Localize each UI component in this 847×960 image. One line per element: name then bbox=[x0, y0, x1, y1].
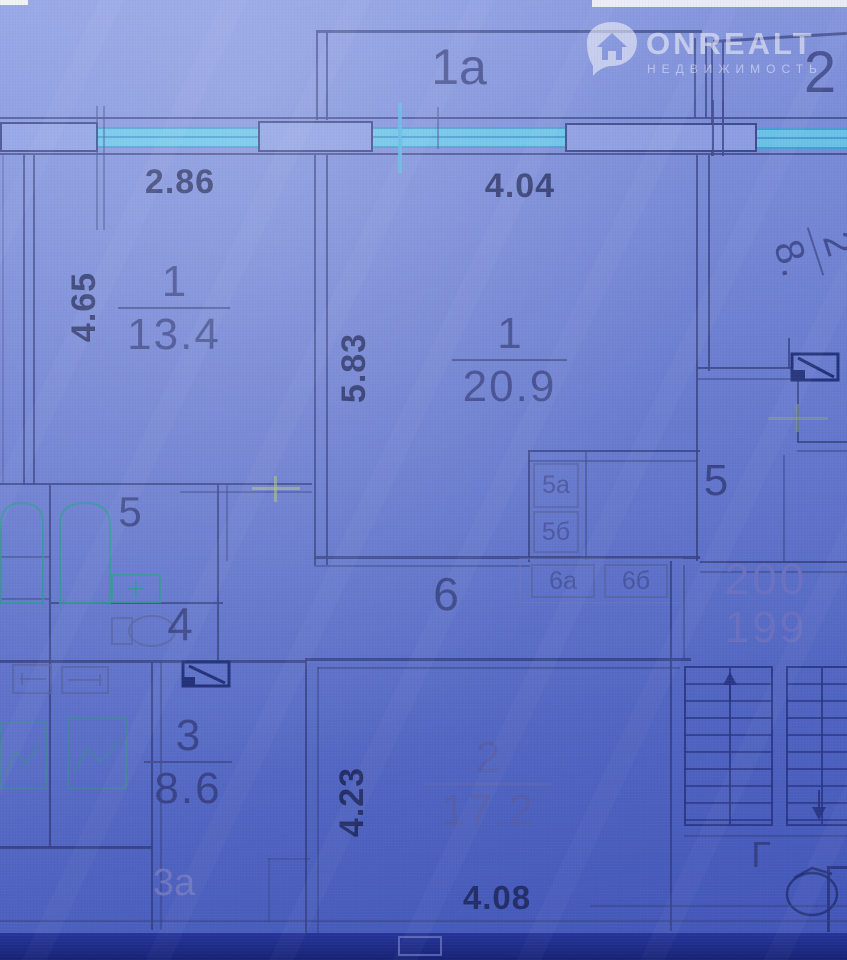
loggia-3a-label: 3а bbox=[136, 860, 212, 906]
vent-shaft-icon bbox=[790, 352, 842, 384]
onrealt-pin-house-icon bbox=[585, 20, 639, 78]
wall-segment bbox=[697, 367, 791, 369]
window-segment bbox=[757, 128, 847, 149]
dimension-bottom: 4.08 bbox=[430, 876, 564, 918]
wall-segment bbox=[0, 483, 312, 485]
dimension-left-vertical: 4.65 bbox=[62, 252, 106, 362]
stair-arrow-down-icon bbox=[812, 807, 826, 820]
balcony-1a-label: 1а bbox=[424, 38, 494, 96]
photo-edge bbox=[592, 0, 847, 7]
room-area: 8. bbox=[767, 235, 817, 283]
closet-6a-label: 6а bbox=[549, 567, 577, 596]
survey-cross bbox=[796, 404, 799, 432]
closet-6a: 6а bbox=[531, 564, 595, 598]
wall-segment bbox=[0, 153, 847, 155]
stair-flight-down bbox=[786, 666, 847, 826]
wall-segment bbox=[316, 30, 702, 33]
wall-segment bbox=[314, 565, 530, 567]
wall-segment bbox=[316, 32, 318, 120]
wall-pier bbox=[258, 121, 373, 152]
wall-segment bbox=[317, 667, 680, 669]
dimension-top-left: 2.86 bbox=[120, 162, 240, 202]
corridor-label: 5 bbox=[698, 455, 734, 507]
wall-segment bbox=[0, 846, 152, 849]
dimension-left-vertical-text: 4.65 bbox=[67, 272, 101, 342]
door-swing-marks bbox=[10, 662, 120, 698]
wall-segment bbox=[712, 100, 714, 156]
wall-segment bbox=[797, 441, 847, 443]
wc-label: 4 bbox=[160, 596, 200, 652]
wall-segment bbox=[326, 32, 328, 120]
stair-flight-up bbox=[684, 666, 773, 826]
wall-segment bbox=[2, 155, 4, 485]
wall-segment bbox=[317, 667, 319, 960]
wall-segment bbox=[528, 450, 700, 452]
closet-6b-label: 6б bbox=[622, 567, 650, 596]
dimension-tick bbox=[96, 106, 98, 230]
dimension-room2-vertical-text: 4.23 bbox=[335, 767, 369, 837]
room-number: 1 bbox=[497, 312, 521, 356]
fraction-bar bbox=[452, 359, 567, 361]
wall-segment bbox=[697, 378, 791, 380]
wall-segment bbox=[590, 905, 847, 907]
kitchen-label: 3 8.6 bbox=[144, 714, 232, 811]
closet-5a-label: 5а bbox=[542, 471, 570, 500]
fraction-bar bbox=[144, 761, 232, 763]
floor-plan-photo: 1а 2 ONREALT НЕДВИЖИМОСТЬ 2.86 4.04 4.65… bbox=[0, 0, 847, 960]
wall-segment bbox=[0, 117, 847, 119]
dimension-center-vertical: 5.83 bbox=[333, 318, 375, 418]
stove-icons bbox=[0, 712, 140, 796]
vent-shaft-icon bbox=[181, 660, 233, 690]
wall-segment bbox=[0, 920, 847, 922]
wall-segment bbox=[528, 460, 698, 462]
stair-arrow-stem bbox=[818, 790, 820, 808]
wall-segment bbox=[827, 866, 847, 869]
wall-segment bbox=[268, 858, 270, 922]
dimension-tick bbox=[437, 107, 439, 149]
wall-segment bbox=[683, 565, 685, 658]
wall-segment bbox=[783, 455, 785, 562]
survey-cross bbox=[274, 476, 277, 502]
wall-segment bbox=[23, 155, 25, 485]
garbage-chute-icon bbox=[784, 862, 844, 920]
hall-label: 6 bbox=[426, 568, 466, 620]
room-number: 1 bbox=[162, 260, 186, 304]
room-clipped-right-label: 2 8. bbox=[765, 214, 847, 289]
room-living-main-label: 1 20.9 bbox=[452, 312, 567, 409]
room-area: 17.2 bbox=[441, 789, 535, 833]
fraction-bar bbox=[425, 783, 551, 785]
bottom-notch bbox=[398, 936, 442, 956]
closet-5b: 5б bbox=[533, 511, 579, 553]
bath-label: 5 bbox=[110, 486, 150, 538]
wall-segment bbox=[305, 658, 307, 960]
apartment-number-lower: 199 bbox=[710, 604, 822, 652]
room-number: 2 bbox=[476, 736, 500, 780]
apartment-number-upper: 200 bbox=[710, 556, 822, 604]
balcony-door-mark bbox=[398, 103, 402, 173]
wall-segment bbox=[722, 100, 724, 156]
watermark-brand: ONREALT bbox=[646, 26, 815, 62]
room-area: 8.6 bbox=[154, 767, 221, 811]
closet-5a: 5а bbox=[533, 463, 579, 508]
wall-segment bbox=[708, 155, 710, 371]
wall-segment bbox=[305, 658, 691, 661]
photo-edge bbox=[0, 0, 28, 5]
stair-arrow-stem bbox=[729, 684, 731, 702]
wall-segment bbox=[585, 452, 587, 560]
wall-segment bbox=[268, 858, 310, 860]
stair-letter-label: Г bbox=[744, 834, 778, 876]
wall-segment bbox=[528, 450, 530, 562]
closet-5b-label: 5б bbox=[542, 518, 570, 547]
room-area: 20.9 bbox=[463, 365, 557, 409]
bathtub-icon bbox=[60, 503, 110, 603]
room-bedroom-label: 2 17.2 bbox=[425, 736, 551, 833]
room-number: 3 bbox=[176, 714, 200, 758]
dimension-top-center: 4.04 bbox=[455, 164, 585, 208]
wall-segment bbox=[314, 155, 316, 565]
wall-segment bbox=[827, 866, 830, 932]
closet-6b: 6б bbox=[604, 564, 668, 598]
room-area: 13.4 bbox=[127, 313, 221, 357]
stair-center-line bbox=[821, 668, 823, 824]
dimension-tick bbox=[103, 106, 105, 230]
watermark-subtitle: НЕДВИЖИМОСТЬ bbox=[647, 62, 823, 76]
dimension-center-vertical-text: 5.83 bbox=[337, 333, 371, 403]
wall-pier bbox=[0, 122, 98, 152]
wall-segment bbox=[326, 155, 328, 565]
wall-segment bbox=[797, 450, 847, 452]
wall-segment bbox=[180, 491, 312, 493]
dimension-room2-vertical: 4.23 bbox=[330, 750, 374, 854]
fraction-bar bbox=[118, 307, 230, 309]
window-segment bbox=[98, 127, 258, 148]
wall-segment bbox=[670, 561, 672, 931]
bathtub-icon bbox=[1, 503, 43, 603]
wall-pier bbox=[565, 123, 757, 152]
room-living-left-label: 1 13.4 bbox=[118, 260, 230, 357]
room-number: 2 bbox=[816, 227, 847, 261]
wall-segment bbox=[33, 155, 35, 485]
